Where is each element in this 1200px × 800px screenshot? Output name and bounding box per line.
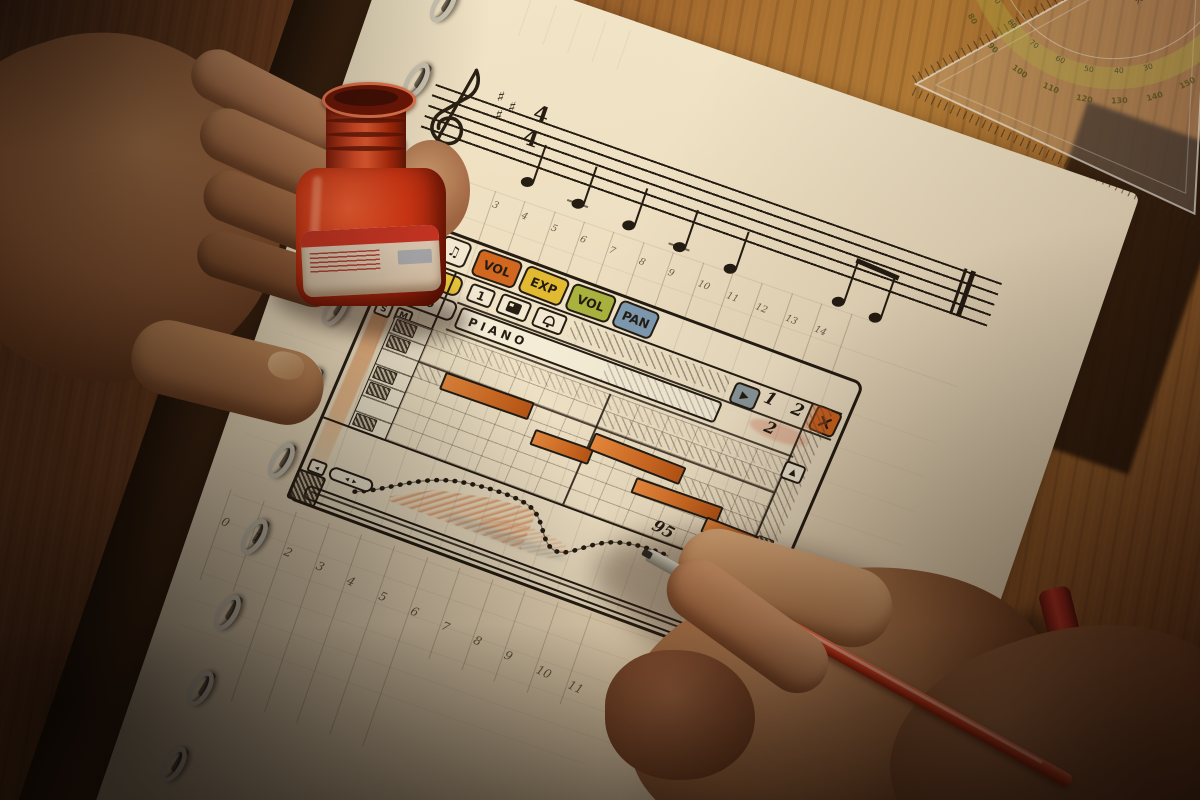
label-text-lines [310, 250, 381, 274]
protractor-inner-number: 40 [1114, 66, 1124, 75]
protractor-outer-number: 140 [1145, 90, 1163, 103]
bottle-thread [326, 146, 406, 151]
protractor-outer-number: 100 [1010, 63, 1029, 80]
protractor-outer-number: 130 [1111, 96, 1128, 106]
protractor-inner-number: 90 [990, 0, 1002, 5]
protractor-inner-number: 60 [1054, 53, 1066, 65]
protractor-inner-number: 80 [1006, 17, 1019, 30]
bottle-mouth-hole [334, 89, 398, 106]
bottle-thread [326, 118, 406, 123]
protractor-numbers: 70809010011012013014015090807060504030 [847, 0, 1200, 264]
protractor-outer-number: 80 [966, 12, 979, 26]
protractor-outer-number: 110 [1041, 81, 1060, 96]
coil-ring [424, 0, 462, 27]
label-blue-patch [397, 249, 432, 265]
protractor-outer-number: 120 [1075, 93, 1093, 105]
protractor-inner-number: 50 [1083, 64, 1094, 75]
spiral-coil [262, 435, 306, 485]
spiral-coil [154, 739, 198, 789]
ink-bottle [288, 80, 453, 305]
protractor: METRIE DREIECK 7080901001101201301401509… [847, 0, 1200, 264]
spiral-coil [208, 587, 252, 637]
bottle-thread [326, 132, 406, 137]
protractor-outer-number: 90 [986, 41, 1000, 55]
scene-photo-sketchbook: ♯ ♯ ♯ 4 4 1234567891011121314 0123456789… [0, 0, 1200, 800]
protractor-outer-number: 150 [1178, 75, 1197, 91]
bottle-label [300, 224, 441, 297]
protractor-inner-number: 70 [1028, 38, 1041, 51]
protractor-inner-number: 30 [1142, 62, 1154, 73]
spiral-coil [181, 663, 225, 713]
spiral-coil [235, 511, 279, 561]
spiral-coil [424, 0, 468, 29]
right-curled-fingers [605, 650, 755, 780]
